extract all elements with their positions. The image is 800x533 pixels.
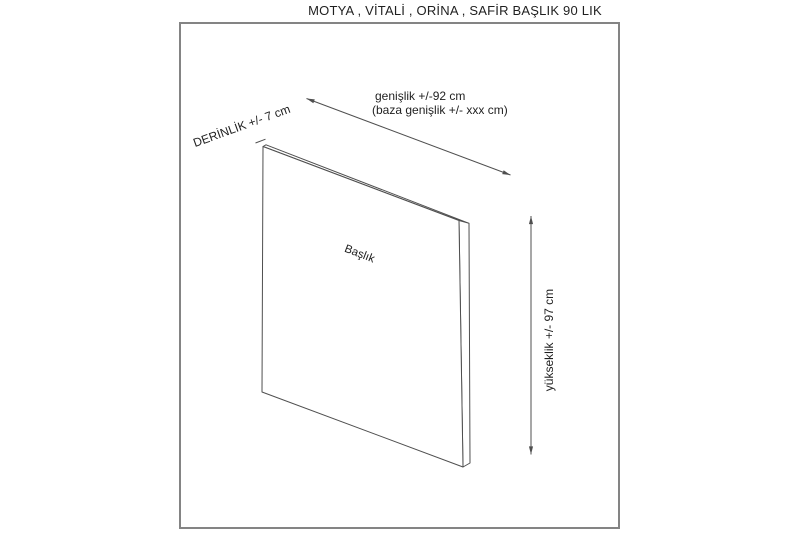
width-value: genişlik +/-92 cm [372,90,508,104]
base-width-value: (baza genişlik +/- xxx cm) [372,104,508,118]
diagram-page: MOTYA , VİTALİ , ORİNA , SAFİR BAŞLIK 90… [0,0,800,533]
page-title: MOTYA , VİTALİ , ORİNA , SAFİR BAŞLIK 90… [308,3,602,18]
width-dimension-label: genişlik +/-92 cm (baza genişlik +/- xxx… [372,90,508,117]
height-dimension-label: yükseklik +/- 97 cm [542,289,556,391]
